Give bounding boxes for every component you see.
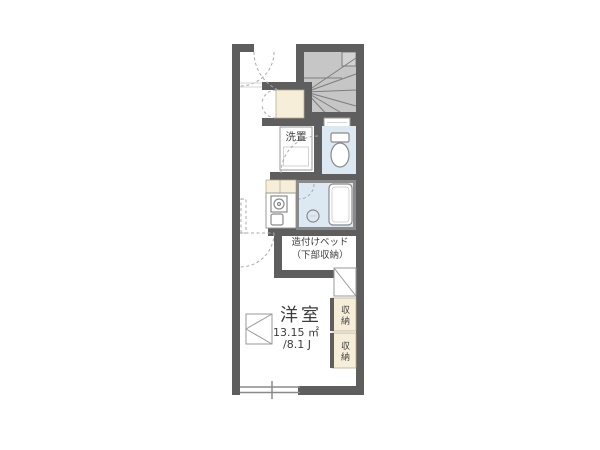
floor-plan: 洗置 造付けベッド （下部収納） 洋室 13.15 ㎡ /8.1 J 収納 収納 — [0, 0, 600, 450]
diagonal-shelf-icon — [334, 268, 356, 296]
room-area-tatami-label: /8.1 J — [262, 339, 332, 352]
storage-upper-label: 収納 — [339, 303, 351, 329]
built-in-bed-label: 造付けベッド — [282, 238, 358, 249]
bathroom — [298, 182, 355, 229]
storage-lower-label: 収納 — [339, 339, 351, 365]
room-name-label: 洋室 — [261, 306, 341, 327]
folding-closet-door-icon — [262, 90, 276, 104]
window-icon — [324, 118, 350, 127]
window-icon — [240, 381, 300, 399]
kitchen — [266, 180, 296, 228]
built-in-bed-sublabel: （下部収納） — [282, 251, 358, 262]
toilet-icon — [331, 133, 349, 167]
closet — [262, 90, 304, 118]
laundry-label: 洗置 — [280, 131, 312, 143]
bathtub-icon — [329, 184, 352, 225]
floor-plan-drawing — [0, 0, 600, 450]
